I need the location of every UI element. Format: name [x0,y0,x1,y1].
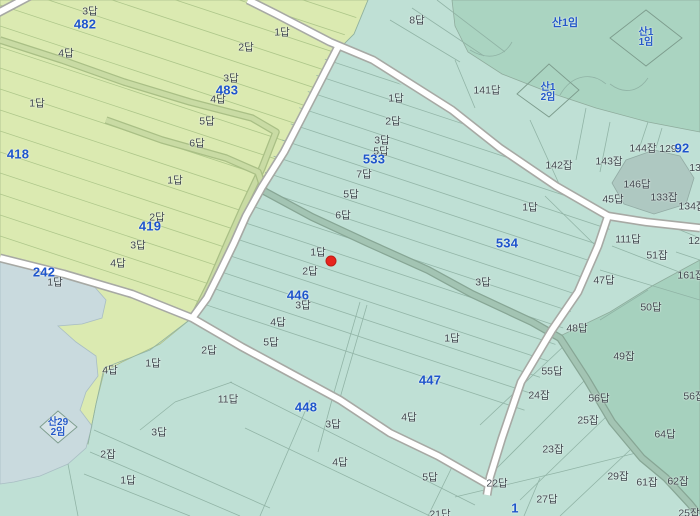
map-canvas[interactable]: 3답4824답1답2답3답4834답5답6답4181답2답4193답4답2421… [0,0,700,516]
map-graphics [0,0,700,516]
map-marker [326,256,337,267]
